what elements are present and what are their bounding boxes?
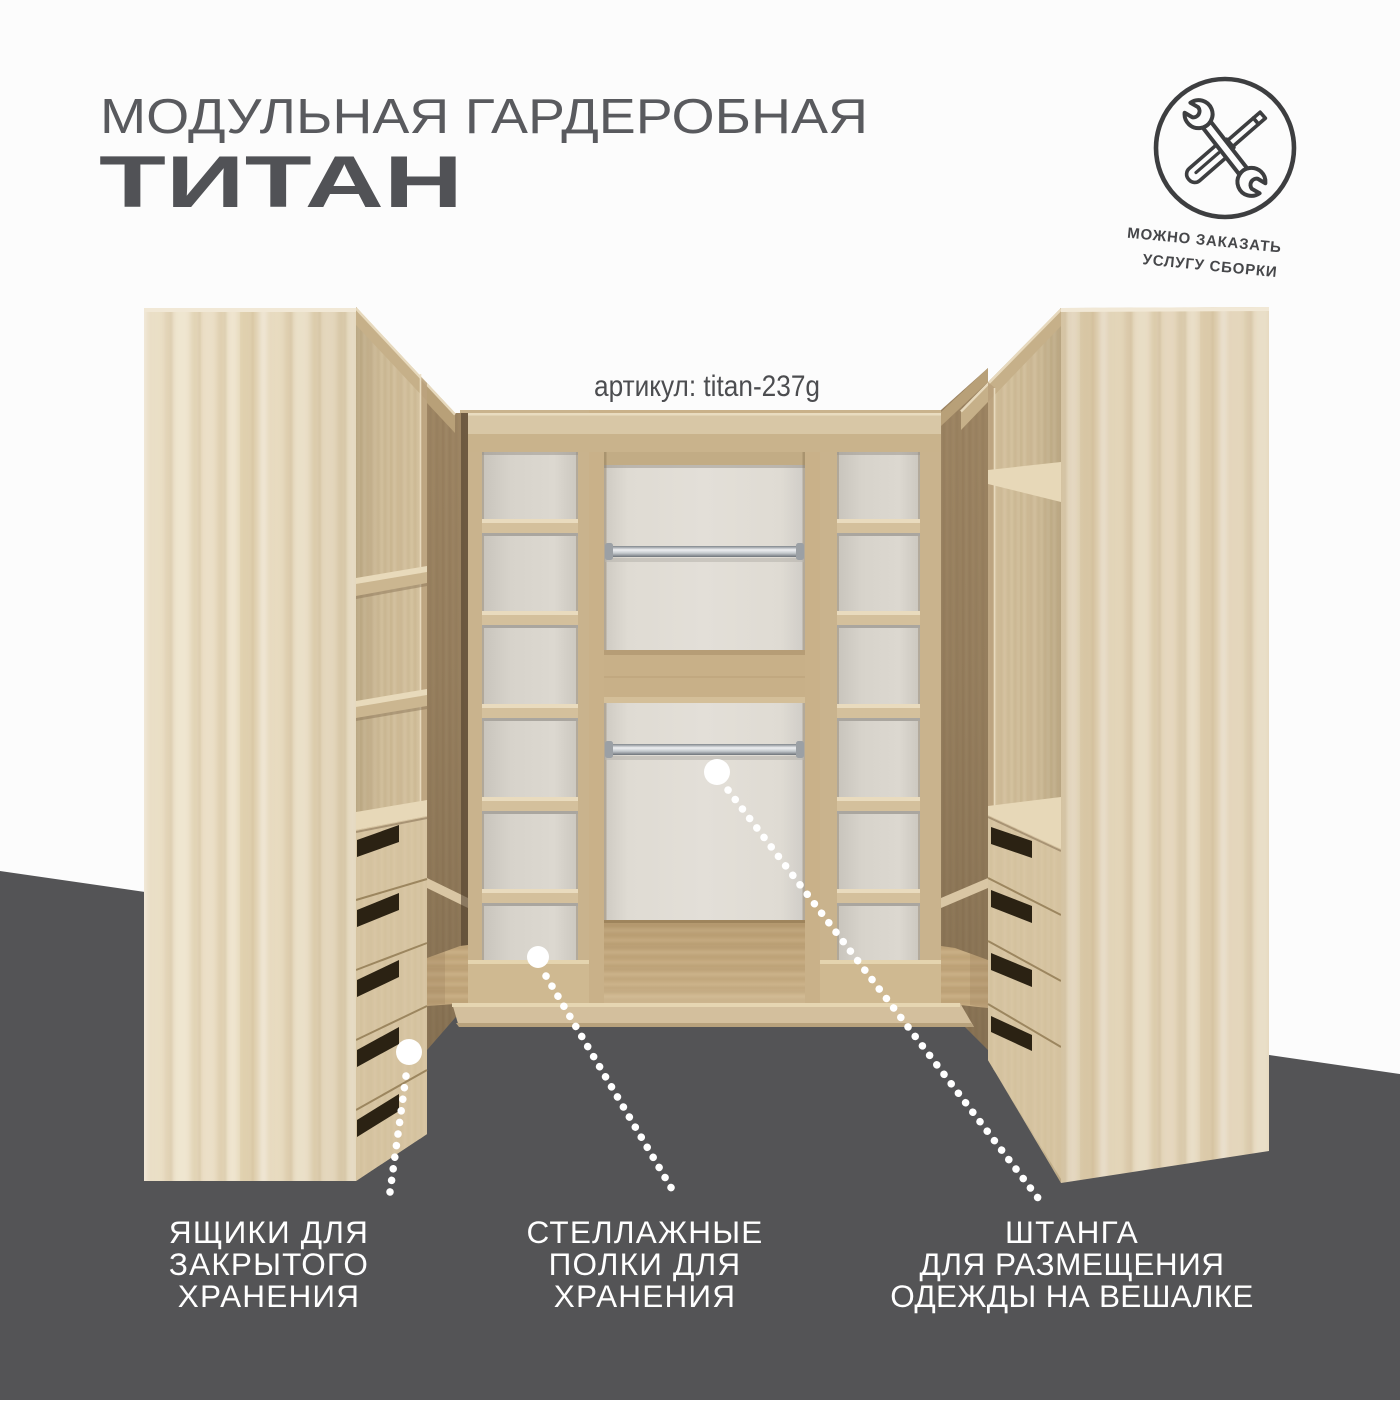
svg-text:ХРАНЕНИЯ: ХРАНЕНИЯ [178,1278,360,1314]
svg-text:ШТАНГА: ШТАНГА [1005,1214,1139,1250]
svg-text:ХРАНЕНИЯ: ХРАНЕНИЯ [554,1278,736,1314]
svg-text:ТИТАН: ТИТАН [99,142,463,223]
svg-text:СТЕЛЛАЖНЫЕ: СТЕЛЛАЖНЫЕ [526,1214,763,1250]
svg-text:МОДУЛЬНАЯ ГАРДЕРОБНАЯ: МОДУЛЬНАЯ ГАРДЕРОБНАЯ [100,90,868,144]
svg-text:ЗАКРЫТОГО: ЗАКРЫТОГО [169,1246,369,1282]
svg-text:ЯЩИКИ ДЛЯ: ЯЩИКИ ДЛЯ [169,1214,369,1250]
svg-text:ОДЕЖДЫ НА ВЕШАЛКЕ: ОДЕЖДЫ НА ВЕШАЛКЕ [890,1278,1253,1314]
svg-text:ДЛЯ РАЗМЕЩЕНИЯ: ДЛЯ РАЗМЕЩЕНИЯ [919,1246,1224,1282]
svg-text:артикул: titan-237g: артикул: titan-237g [594,370,820,403]
svg-text:ПОЛКИ ДЛЯ: ПОЛКИ ДЛЯ [549,1246,742,1282]
